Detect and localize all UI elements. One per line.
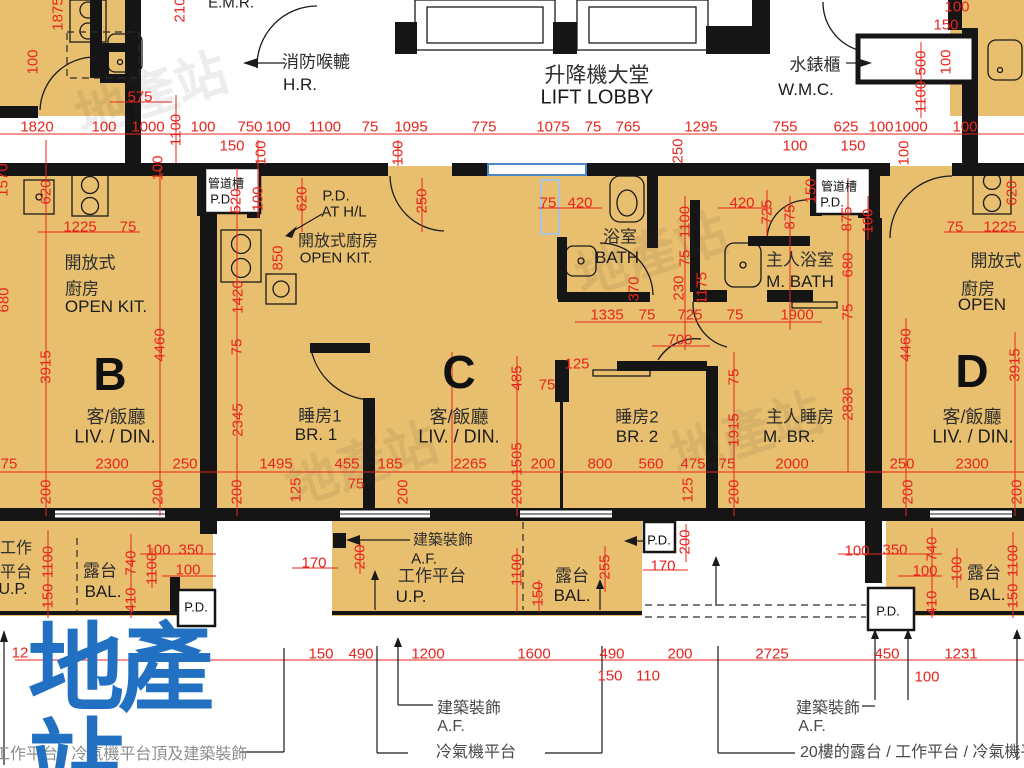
brand-logo-main: 地產站 <box>28 622 296 768</box>
brand-logo: 地產站 香港經濟日報 <box>28 622 296 768</box>
floor-plan-canvas: E.M.R.消防喉轆H.R.升降機大堂LIFT LOBBY水錶櫃W.M.C.管道… <box>0 0 1024 768</box>
